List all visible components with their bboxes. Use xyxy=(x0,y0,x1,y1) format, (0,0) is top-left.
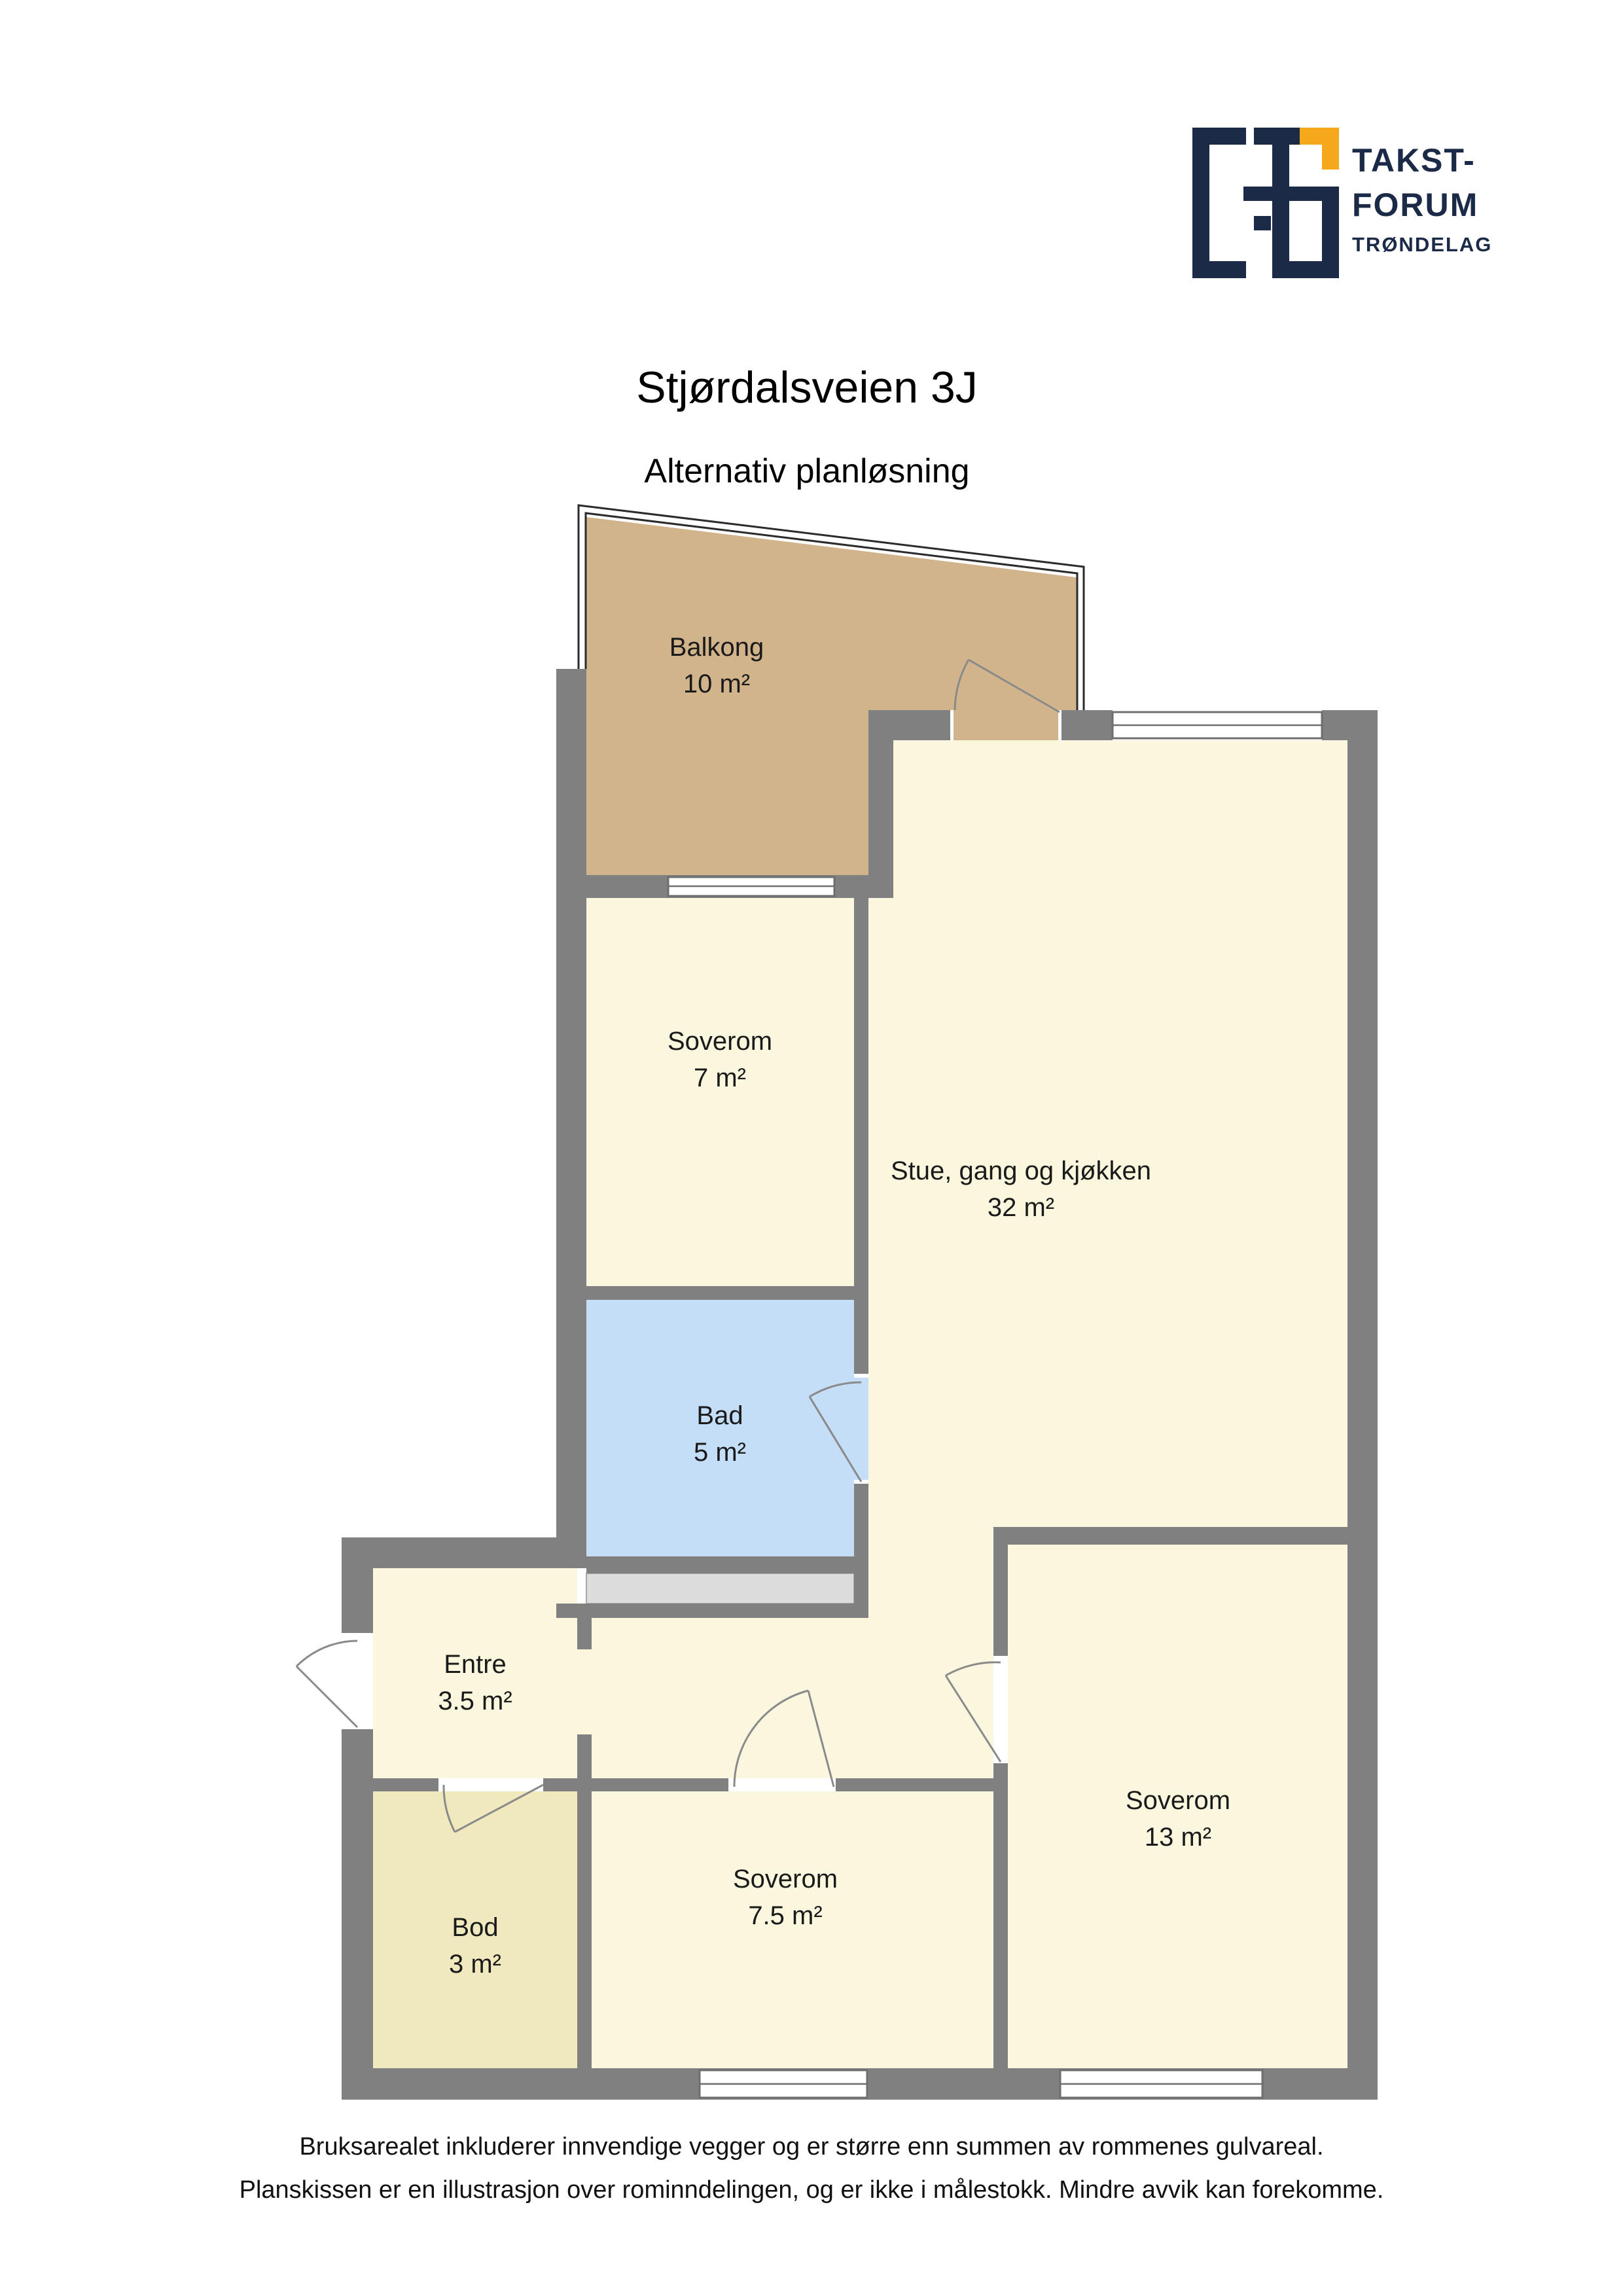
wall xyxy=(577,1618,592,1649)
logo-line2: FORUM xyxy=(1352,187,1478,223)
window-stue xyxy=(1113,712,1322,738)
floor-plan-document: TAKST- FORUM TRØNDELAG Stjørdalsveien 3J… xyxy=(0,0,1623,2296)
room-label-entre: Entre xyxy=(444,1650,507,1679)
wall xyxy=(1061,710,1113,740)
page-title: Stjørdalsveien 3J xyxy=(636,363,978,412)
room-label-soverom-7-5: Soverom xyxy=(733,1865,838,1893)
wall xyxy=(342,1729,373,2100)
wall xyxy=(586,1286,868,1300)
wall xyxy=(543,1778,728,1791)
wall xyxy=(854,1484,868,1556)
room-area-soverom-13: 13 m² xyxy=(1145,1823,1211,1852)
room-label-balkong: Balkong xyxy=(669,633,764,662)
room-gang xyxy=(592,1618,993,1778)
room-label-soverom-7: Soverom xyxy=(668,1027,772,1056)
shaft xyxy=(586,1573,854,1604)
room-label-bod: Bod xyxy=(452,1913,498,1942)
wall xyxy=(868,710,893,875)
room-stue xyxy=(868,740,1347,1527)
room-area-soverom-7: 7 m² xyxy=(694,1064,746,1092)
page: TAKST- FORUM TRØNDELAG Stjørdalsveien 3J… xyxy=(0,0,1623,2296)
footer-disclaimer-line2: Planskissen er en illustrasjon over romi… xyxy=(240,2176,1384,2204)
room-area-entre: 3.5 m² xyxy=(438,1687,512,1715)
room-label-soverom-13: Soverom xyxy=(1126,1786,1230,1815)
window-soverom7-5 xyxy=(700,2070,867,2098)
room-area-balkong: 10 m² xyxy=(683,670,750,698)
room-area-bod: 3 m² xyxy=(449,1950,501,1979)
wall xyxy=(854,898,868,1374)
window-soverom7 xyxy=(668,877,834,896)
wall xyxy=(836,1778,993,1791)
page-subtitle: Alternativ planløsning xyxy=(644,452,969,490)
footer-disclaimer-line1: Bruksarealet inkluderer innvendige vegge… xyxy=(299,2133,1323,2161)
wall xyxy=(993,1545,1008,1656)
wall xyxy=(342,1537,373,1633)
wall xyxy=(993,1763,1008,2068)
logo-mark-icon xyxy=(1192,128,1339,278)
wall xyxy=(586,1556,868,1573)
wall xyxy=(893,710,950,740)
wall xyxy=(556,1604,868,1618)
room-label-stue: Stue, gang og kjøkken xyxy=(891,1157,1151,1185)
front-door-icon xyxy=(296,1641,357,1727)
wall xyxy=(556,669,586,1537)
wall xyxy=(373,1778,438,1791)
window-soverom13 xyxy=(1060,2070,1262,2098)
wall xyxy=(993,1527,1347,1545)
logo-line3: TRØNDELAG xyxy=(1352,233,1492,256)
room-label-bad: Bad xyxy=(696,1401,743,1430)
balcony-door-floor xyxy=(954,710,1058,740)
wall xyxy=(1347,710,1378,2100)
logo-line1: TAKST- xyxy=(1352,142,1476,179)
room-area-soverom-7-5: 7.5 m² xyxy=(748,1901,822,1930)
room-area-stue: 32 m² xyxy=(988,1193,1054,1222)
logo: TAKST- FORUM TRØNDELAG xyxy=(1192,128,1492,278)
gang-passage xyxy=(577,1649,592,1734)
room-area-bad: 5 m² xyxy=(694,1438,746,1467)
wall xyxy=(342,1537,586,1568)
